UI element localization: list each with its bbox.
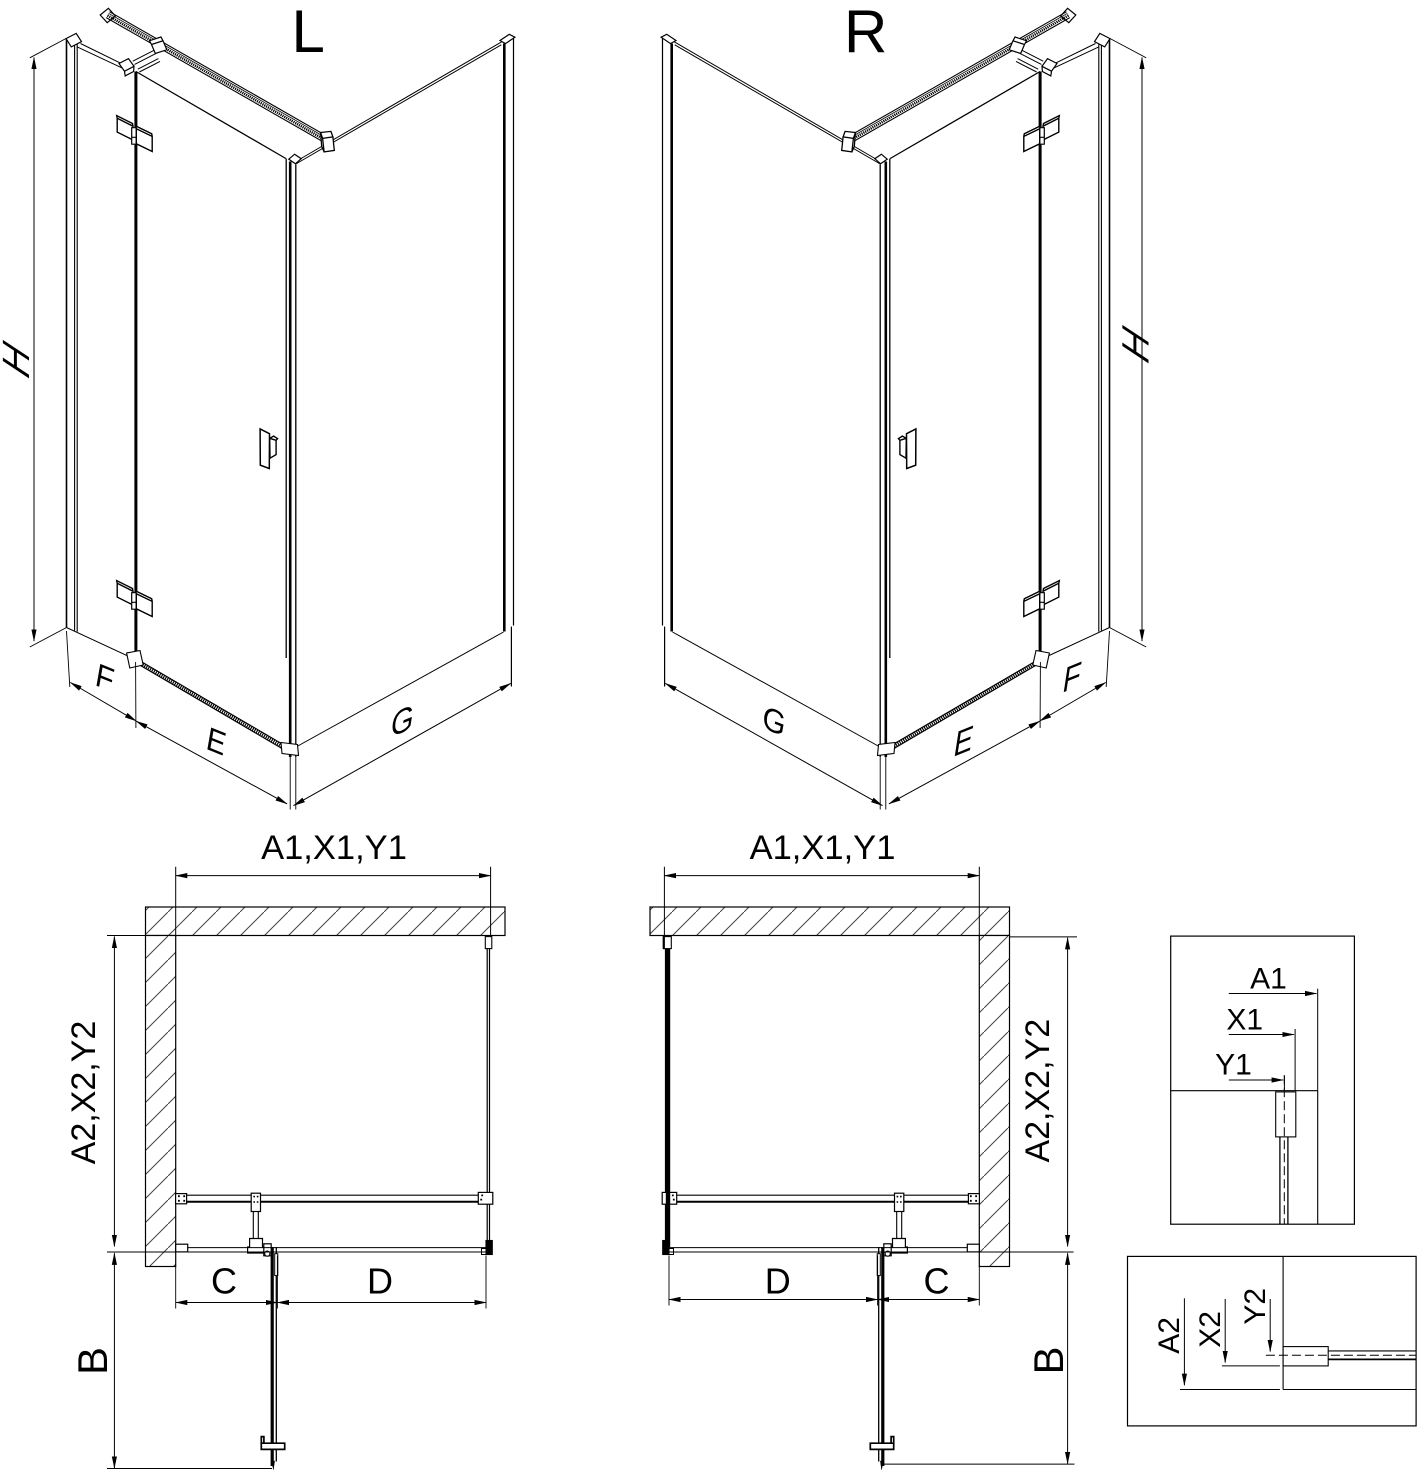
svg-text:E: E [954, 718, 973, 764]
svg-text:X1: X1 [1226, 1004, 1263, 1037]
svg-text:B: B [1025, 1346, 1072, 1374]
svg-text:X2: X2 [1194, 1311, 1227, 1348]
svg-text:A2,X2,Y2: A2,X2,Y2 [1019, 1019, 1057, 1163]
svg-text:R: R [844, 0, 887, 65]
svg-text:A2,X2,Y2: A2,X2,Y2 [65, 1021, 103, 1165]
svg-text:A2: A2 [1153, 1317, 1186, 1354]
svg-text:A1,X1,Y1: A1,X1,Y1 [750, 829, 896, 867]
svg-text:A1,X1,Y1: A1,X1,Y1 [261, 829, 407, 867]
svg-text:A1: A1 [1250, 963, 1287, 996]
svg-text:D: D [367, 1261, 393, 1302]
svg-text:Y2: Y2 [1239, 1288, 1272, 1325]
svg-text:D: D [765, 1261, 791, 1302]
svg-text:E: E [206, 719, 225, 765]
svg-text:Y1: Y1 [1215, 1049, 1252, 1082]
svg-text:C: C [211, 1261, 237, 1302]
svg-text:L: L [292, 0, 325, 65]
svg-text:F: F [96, 655, 115, 701]
svg-text:C: C [924, 1261, 950, 1302]
svg-text:F: F [1063, 654, 1082, 700]
svg-text:B: B [69, 1347, 116, 1375]
